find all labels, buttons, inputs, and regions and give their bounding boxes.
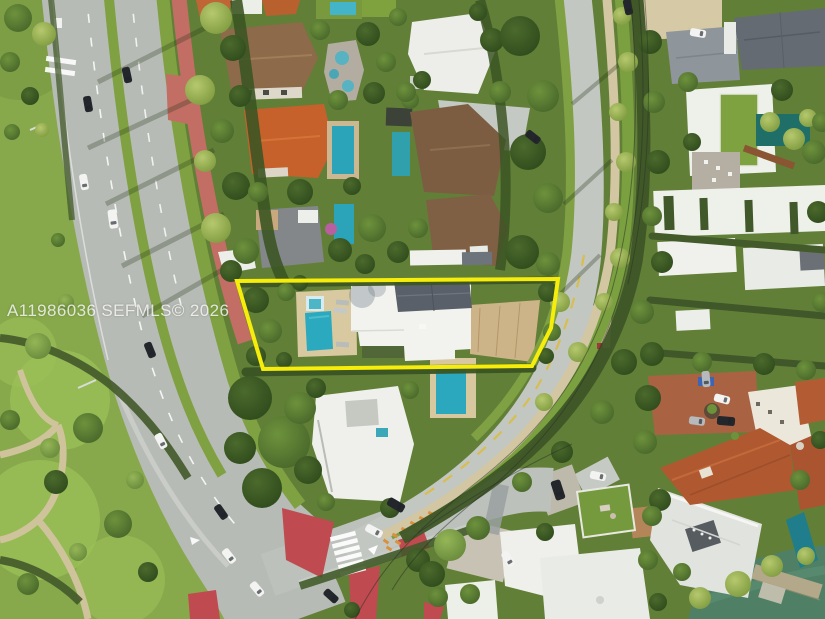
tree-canopy: [358, 214, 386, 242]
window: [768, 410, 772, 414]
roof-step: [352, 330, 404, 331]
car-body: [701, 371, 710, 388]
swimming-pool: [332, 126, 354, 174]
pergola: [386, 108, 413, 127]
tree-canopy: [376, 52, 396, 72]
deck-table: [610, 513, 616, 519]
tree-canopy: [317, 493, 335, 511]
tree-canopy: [568, 342, 588, 362]
white-roof: [410, 250, 466, 266]
lagoon-pool: [335, 51, 349, 65]
tree-canopy: [771, 79, 793, 101]
tree-canopy: [489, 81, 511, 103]
tree-canopy: [527, 80, 559, 112]
planter-shrub: [707, 404, 717, 414]
tree-canopy: [258, 319, 282, 343]
tree-canopy: [126, 471, 144, 489]
tree-canopy: [396, 82, 416, 102]
tree-canopy: [32, 22, 56, 46]
tree-canopy: [760, 112, 780, 132]
tree-canopy: [138, 562, 158, 582]
tree-canopy: [306, 378, 326, 398]
tree-canopy: [233, 238, 259, 264]
roof-deck: [345, 399, 379, 427]
tree-canopy: [725, 571, 751, 597]
red-median-nose: [188, 590, 220, 619]
tree-canopy: [276, 352, 292, 368]
tree-canopy: [428, 587, 448, 607]
chimney: [796, 442, 804, 450]
tree-canopy: [783, 128, 805, 150]
tree-canopy: [649, 593, 667, 611]
swimming-pool: [392, 132, 410, 176]
kitchen-detail: [701, 533, 704, 536]
tree-canopy: [689, 587, 711, 609]
tree-canopy: [413, 71, 431, 89]
white-gable: [724, 22, 736, 54]
tree-canopy: [635, 385, 661, 411]
tree-canopy: [790, 470, 810, 490]
car-windshield: [728, 418, 732, 424]
tree-canopy: [363, 82, 385, 104]
tree-canopy: [535, 393, 553, 411]
hedge-strip: [699, 198, 708, 230]
car: [717, 416, 736, 427]
tree-canopy: [638, 550, 658, 570]
window: [281, 90, 287, 95]
tree-canopy: [344, 602, 360, 618]
window: [756, 402, 760, 406]
tree-canopy: [4, 4, 32, 32]
lagoon-pool: [329, 69, 339, 79]
tree-canopy: [389, 8, 407, 26]
skylight: [712, 178, 716, 182]
green-roof-deck: [577, 485, 635, 538]
tree-canopy: [630, 300, 654, 324]
hedge-strip: [663, 196, 674, 230]
tree-canopy: [17, 573, 39, 595]
tree-canopy: [242, 468, 282, 508]
spa: [309, 299, 321, 309]
tree-canopy: [194, 150, 216, 172]
tree-canopy: [640, 342, 664, 366]
tree-canopy: [200, 2, 232, 34]
tree-canopy: [512, 472, 532, 492]
tree-canopy: [609, 103, 627, 121]
tree-canopy: [434, 529, 466, 561]
tree-canopy: [228, 376, 272, 420]
rooftop-ac-unit: [419, 324, 426, 329]
car-body: [717, 416, 736, 427]
hedge-strip: [789, 202, 798, 234]
tree-canopy: [185, 75, 215, 105]
tree-canopy: [328, 90, 348, 110]
tree-canopy: [0, 410, 20, 430]
tree-canopy: [224, 432, 256, 464]
tree-canopy: [505, 235, 539, 269]
tree-canopy: [646, 150, 670, 174]
tree-canopy: [355, 254, 375, 274]
tree-canopy: [44, 470, 68, 494]
tree-canopy: [533, 183, 563, 213]
eave-shadow: [362, 346, 404, 358]
tree-canopy: [229, 85, 251, 107]
tree-canopy: [796, 360, 816, 380]
tree-canopy: [356, 22, 380, 46]
tree-canopy: [802, 140, 825, 164]
tree-canopy: [536, 523, 554, 541]
tree-canopy: [643, 91, 665, 113]
planter-shrub: [731, 432, 739, 440]
swimming-pool: [330, 2, 356, 15]
tree-canopy: [4, 124, 20, 140]
tree-canopy: [73, 413, 103, 443]
tree-canopy: [201, 213, 231, 243]
tree-canopy: [469, 3, 487, 21]
tree-canopy: [401, 381, 419, 399]
tree-canopy: [797, 547, 815, 565]
garage-roof: [675, 309, 710, 331]
tree-canopy: [220, 35, 246, 61]
tree-canopy: [69, 543, 87, 561]
rooftop-spa: [376, 428, 388, 437]
bougainvillea: [325, 223, 337, 235]
tree-canopy: [605, 203, 623, 221]
tree-canopy: [220, 260, 242, 282]
lagoon-pool: [342, 80, 354, 92]
tree-canopy: [761, 555, 783, 577]
terracotta-roof: [795, 378, 825, 425]
skylight: [596, 596, 604, 604]
skylight: [728, 172, 732, 176]
kitchen-detail: [709, 537, 712, 540]
tree-canopy: [35, 123, 49, 137]
car-windshield: [704, 381, 709, 385]
lounge-chair: [336, 342, 349, 348]
hedge-strip: [744, 200, 753, 232]
tree-canopy: [460, 584, 480, 604]
tree-canopy: [284, 392, 316, 424]
tree-canopy: [611, 349, 637, 375]
tree-canopy: [287, 179, 313, 205]
tree-canopy: [222, 172, 250, 200]
tree-canopy: [0, 52, 20, 72]
window: [263, 90, 269, 95]
car: [701, 371, 710, 388]
tree-canopy: [343, 177, 361, 195]
tree-canopy: [248, 182, 268, 202]
roof-section: [298, 210, 318, 223]
tree-canopy: [21, 87, 39, 105]
gravel-roof: [692, 152, 740, 194]
tree-canopy: [51, 233, 65, 247]
tree-canopy: [651, 251, 673, 273]
mls-watermark: A11986036 SEFMLS© 2026: [7, 301, 229, 321]
gray-roof: [462, 252, 492, 266]
tree-canopy: [210, 119, 234, 143]
skylight: [704, 160, 708, 164]
tree-canopy: [466, 516, 490, 540]
tree-canopy: [480, 28, 504, 52]
white-roof-house: [540, 548, 650, 619]
tree-canopy: [104, 510, 132, 538]
skylight: [716, 166, 720, 170]
tree-canopy: [753, 353, 775, 375]
tree-canopy: [387, 241, 409, 263]
aerial-listing-photo: A11986036 SEFMLS© 2026: [0, 0, 825, 619]
paver-driveway: [470, 300, 540, 362]
tree-canopy: [633, 430, 657, 454]
tree-canopy: [536, 252, 560, 276]
swimming-pool: [334, 204, 354, 244]
tree-canopy: [642, 206, 662, 226]
tree-canopy: [294, 456, 322, 484]
tree-canopy: [40, 438, 60, 458]
tree-canopy: [642, 506, 662, 526]
tree-canopy: [419, 561, 445, 587]
tree-canopy: [408, 218, 428, 238]
terracotta-roof: [262, 0, 300, 16]
tree-canopy: [25, 333, 51, 359]
tree-canopy: [277, 283, 295, 301]
rowhouse-roofs: [653, 185, 825, 237]
tree-canopy: [328, 238, 352, 262]
window: [780, 420, 784, 424]
tree-canopy: [692, 352, 712, 372]
tree-canopy: [590, 400, 614, 424]
tree-canopy: [673, 563, 691, 581]
tree-canopy: [683, 133, 701, 151]
tree-canopy: [292, 275, 308, 291]
tree-canopy: [500, 16, 540, 56]
tree-canopy: [310, 20, 330, 40]
tree-canopy: [678, 72, 698, 92]
